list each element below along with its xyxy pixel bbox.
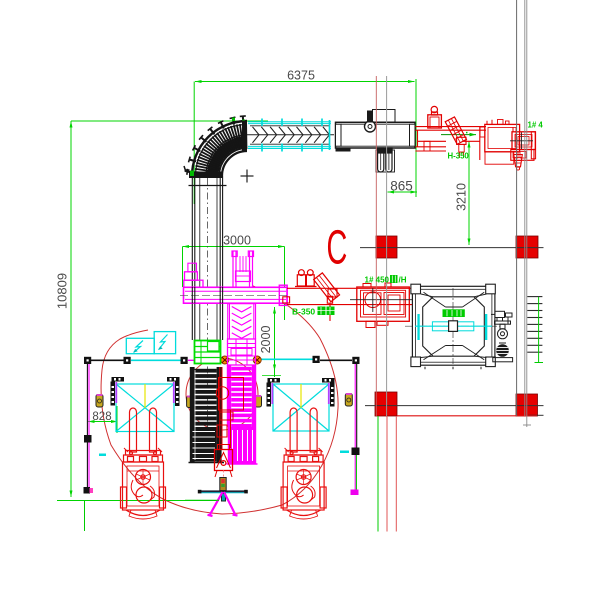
svg-text:/H: /H xyxy=(399,275,407,284)
svg-text:3000: 3000 xyxy=(223,234,251,248)
svg-text:1# 450: 1# 450 xyxy=(365,275,390,284)
svg-text:B-350: B-350 xyxy=(292,307,315,317)
svg-text:828: 828 xyxy=(92,411,111,423)
svg-text:865: 865 xyxy=(390,179,413,194)
svg-text:6375: 6375 xyxy=(287,69,315,83)
svg-text:C: C xyxy=(327,221,348,274)
svg-text:1# 4: 1# 4 xyxy=(528,120,544,129)
svg-text:3210: 3210 xyxy=(455,183,469,211)
svg-text:10809: 10809 xyxy=(55,273,70,309)
svg-text:H-350: H-350 xyxy=(448,152,470,161)
svg-text:2000: 2000 xyxy=(259,326,273,354)
